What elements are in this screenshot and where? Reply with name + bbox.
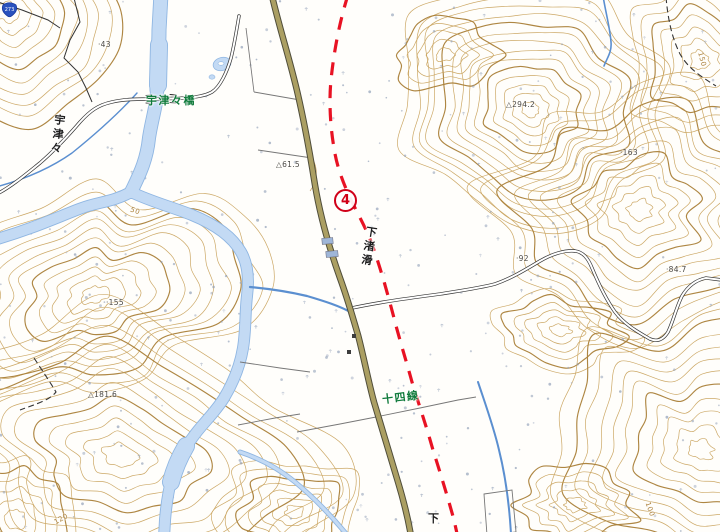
topographic-map[interactable]: 宇津々橋宇津々下渚滑十四線下·43△61.5△294.2·163·155△181… (0, 0, 720, 532)
route-number: 273 (5, 7, 15, 13)
national-route-shield-icon: 273 (0, 0, 19, 18)
map-canvas (0, 0, 720, 532)
numbered-boundary-marker: 4 (334, 189, 357, 212)
